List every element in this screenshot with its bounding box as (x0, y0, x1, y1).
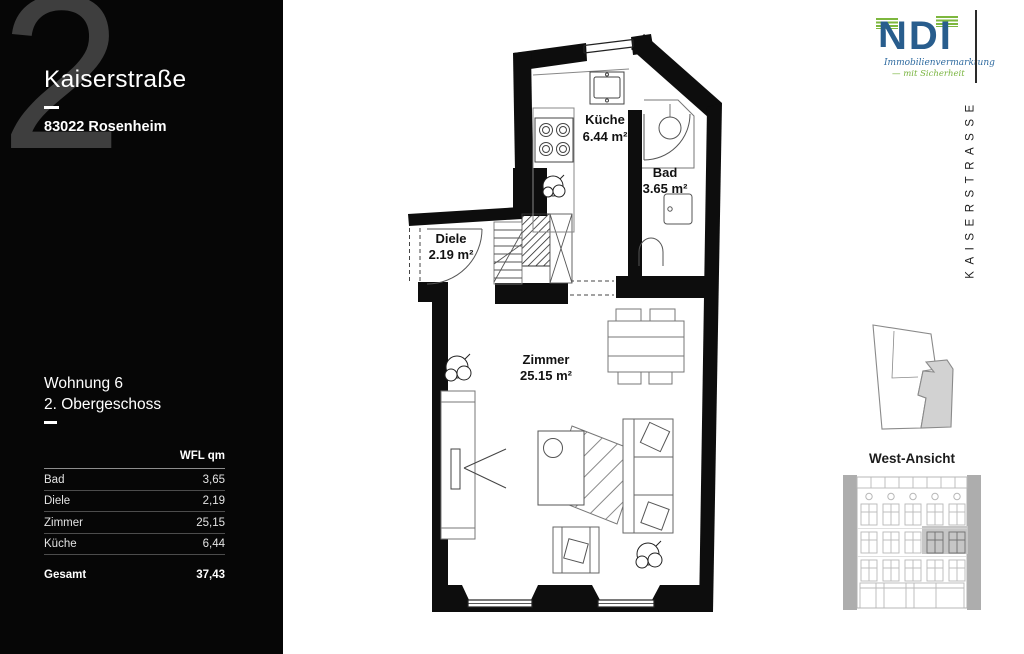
bathroom-shower (642, 100, 694, 168)
plant-icon (445, 354, 471, 381)
plant-icon (543, 175, 565, 197)
pillow-icon (564, 539, 588, 563)
room-label-kueche: Küche (585, 112, 625, 127)
armchair (553, 527, 599, 573)
window-bottom-left (462, 585, 538, 607)
room-area-diele: 2.19 m² (429, 247, 474, 262)
window-top (584, 40, 633, 54)
door-arc-bad (644, 114, 690, 160)
washbasin (664, 194, 692, 224)
sideboard (441, 391, 506, 539)
room-label-zimmer: Zimmer (523, 352, 570, 367)
shaft-cross (550, 214, 572, 283)
sofa (623, 419, 673, 533)
west-elevation (843, 475, 981, 610)
facade-windows (861, 504, 965, 581)
site-key-plan (873, 325, 953, 429)
room-area-zimmer: 25.15 m² (520, 368, 573, 383)
room-label-diele: Diele (435, 231, 466, 246)
window-bottom-right (592, 585, 660, 607)
page: 2 Kaiserstraße 83022 Rosenheim Wohnung 6… (0, 0, 1024, 654)
plant-icon (636, 541, 662, 568)
toilet (639, 238, 663, 266)
neighbor-wall (843, 475, 857, 610)
neighbor-wall (967, 475, 981, 610)
stove (535, 118, 573, 162)
room-area-bad: 3.65 m² (643, 181, 688, 196)
room-label-bad: Bad (653, 165, 678, 180)
floor-plan: Küche 6.44 m² Bad 3.65 m² Diele 2.19 m² … (0, 0, 1024, 654)
room-area-kueche: 6.44 m² (583, 129, 628, 144)
desk (538, 431, 584, 505)
kitchen-sink (590, 72, 624, 104)
tv-icon (451, 449, 460, 489)
dining-table (608, 309, 684, 384)
